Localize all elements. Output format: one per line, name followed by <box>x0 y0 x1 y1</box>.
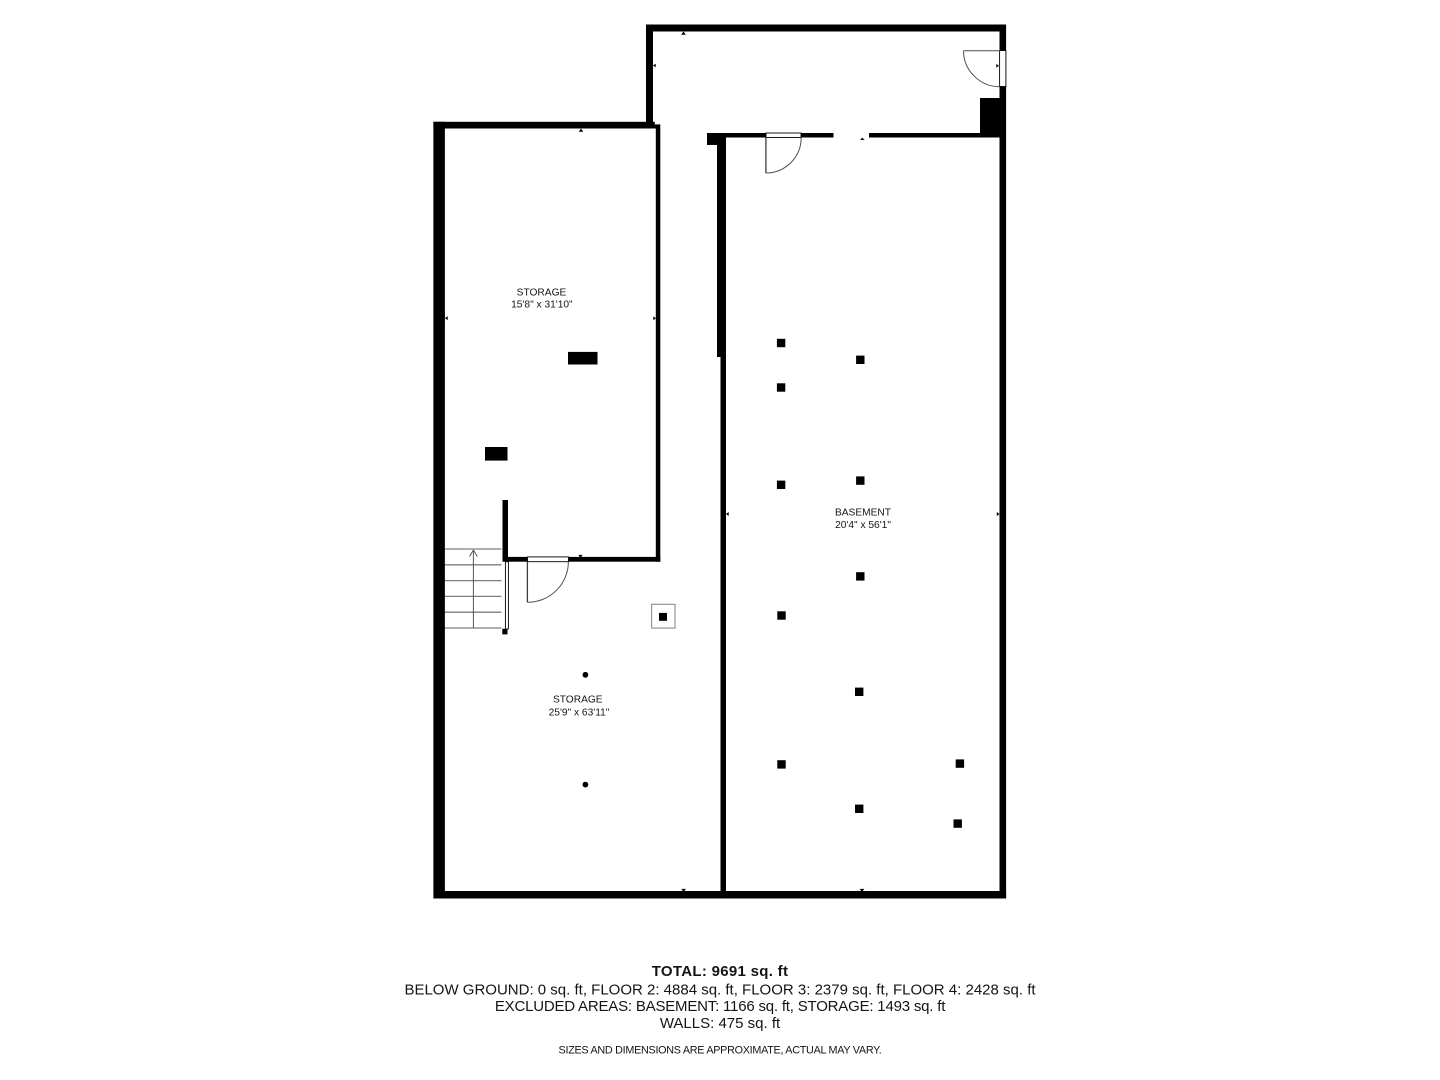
svg-text:TOTAL: 9691 sq. ft: TOTAL: 9691 sq. ft <box>652 963 789 980</box>
svg-text:STORAGE: STORAGE <box>553 695 603 706</box>
svg-text:25'9" x 63'11": 25'9" x 63'11" <box>549 707 610 718</box>
svg-text:WALLS: 475 sq. ft: WALLS: 475 sq. ft <box>660 1015 781 1032</box>
svg-text:BELOW GROUND: 0 sq. ft, FLOOR: BELOW GROUND: 0 sq. ft, FLOOR 2: 4884 sq… <box>404 981 1036 998</box>
svg-text:15'8" x 31'10": 15'8" x 31'10" <box>511 300 573 311</box>
svg-text:EXCLUDED AREAS: BASEMENT: 1166: EXCLUDED AREAS: BASEMENT: 1166 sq. ft, S… <box>495 998 946 1015</box>
svg-text:SIZES AND DIMENSIONS ARE APPRO: SIZES AND DIMENSIONS ARE APPROXIMATE, AC… <box>559 1045 882 1057</box>
svg-text:20'4" x 56'1": 20'4" x 56'1" <box>835 520 891 531</box>
svg-text:STORAGE: STORAGE <box>517 288 567 299</box>
svg-text:BASEMENT: BASEMENT <box>835 508 891 519</box>
